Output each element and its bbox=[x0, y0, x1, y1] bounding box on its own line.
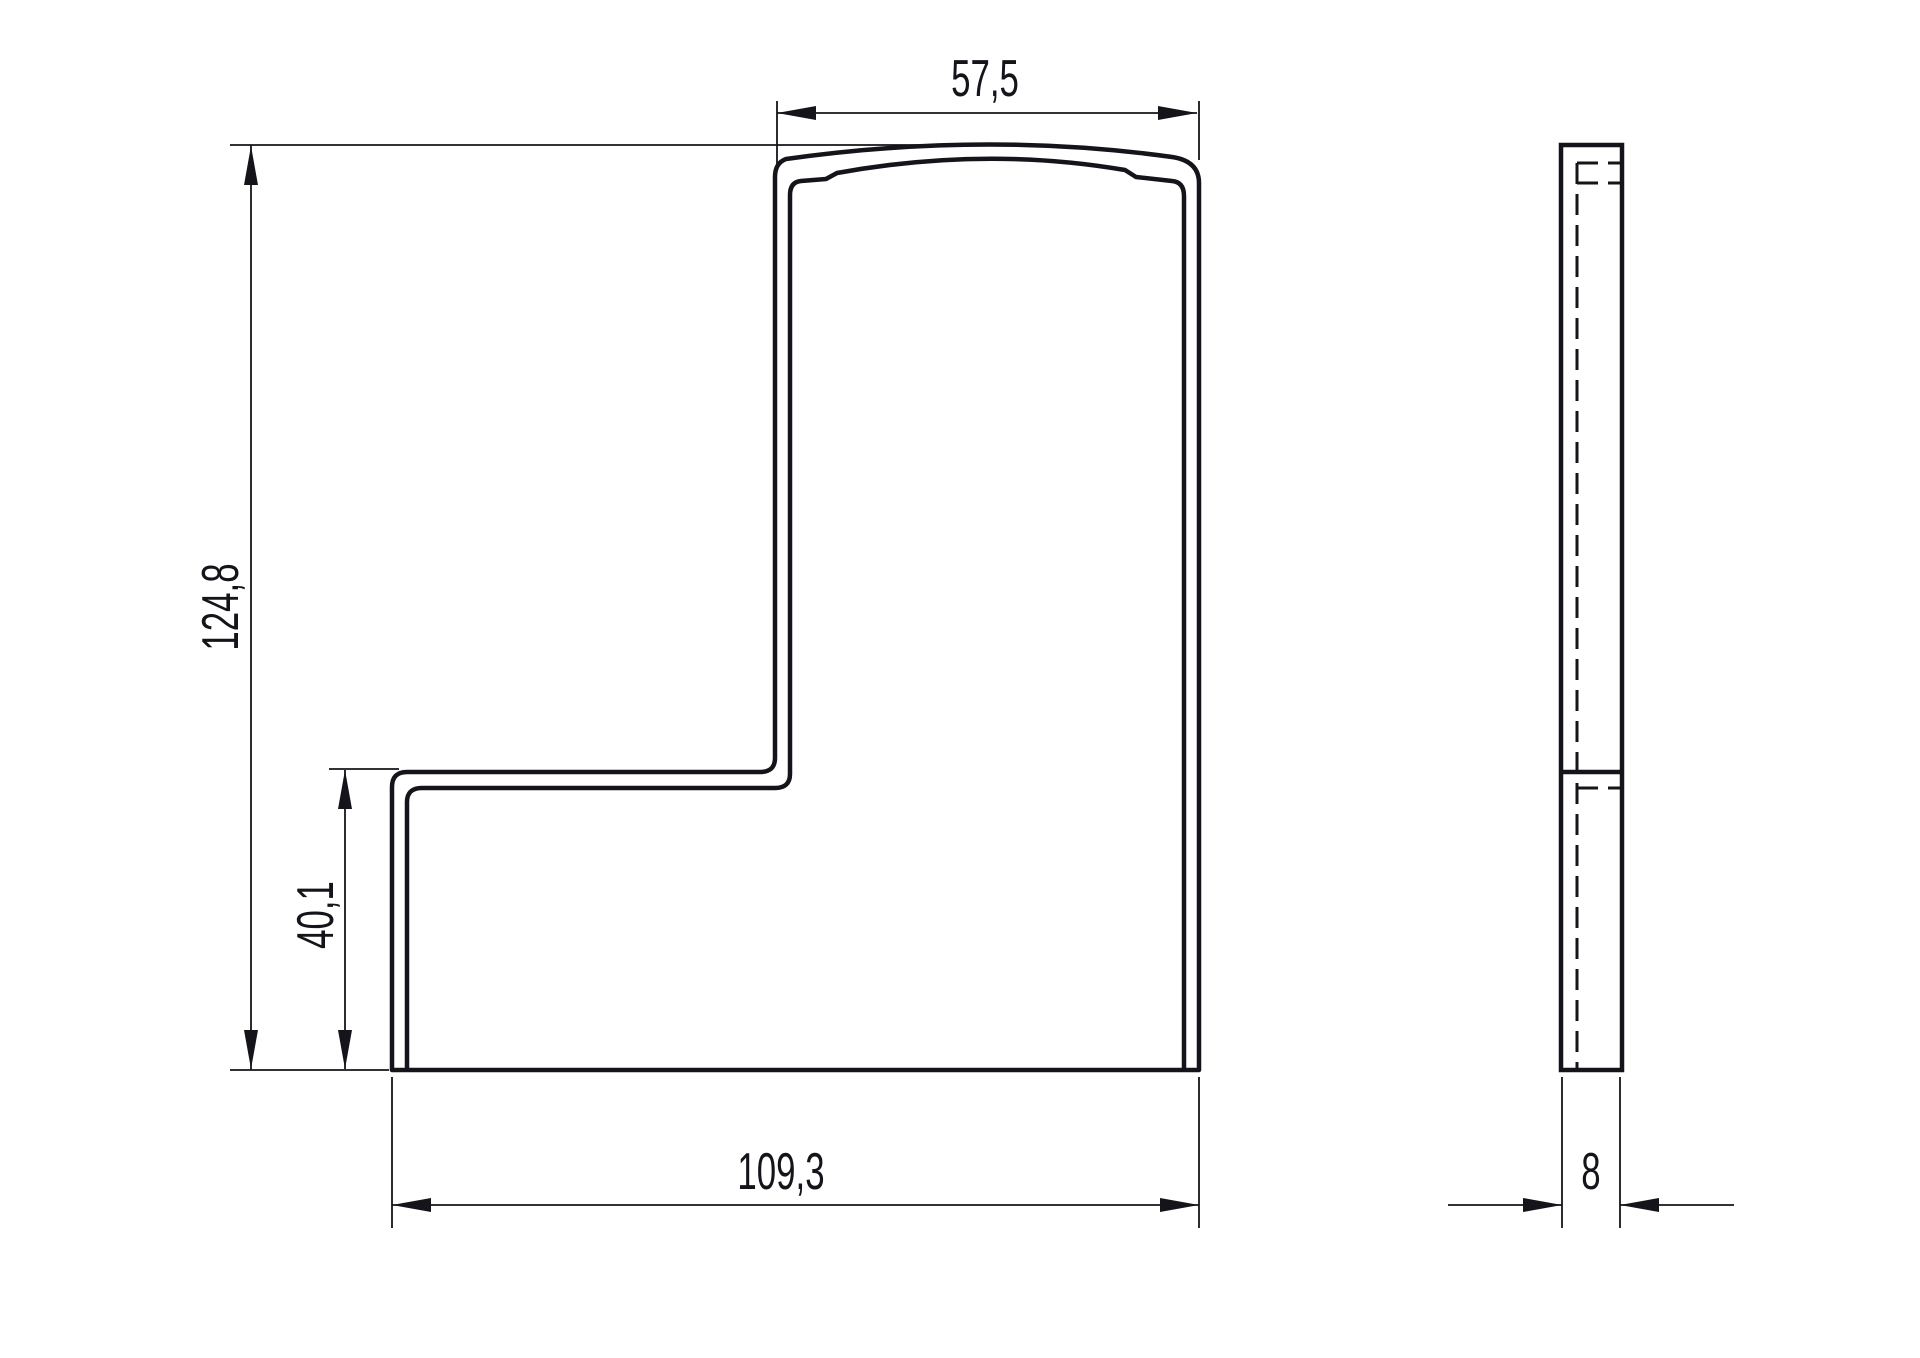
arrowhead-left bbox=[1523, 1198, 1562, 1212]
dimension-text-step-height: 40,1 bbox=[287, 881, 345, 949]
front-view bbox=[392, 144, 1199, 1070]
dimension-step-height: 40,1 bbox=[287, 769, 399, 1069]
side-outline bbox=[1561, 145, 1622, 1070]
front-inner-contour bbox=[407, 159, 1184, 1070]
arrowhead-right bbox=[1158, 106, 1197, 120]
dimension-bottom-width: 109,3 bbox=[392, 1077, 1199, 1228]
front-outer-contour bbox=[392, 144, 1199, 1070]
arrowhead-top bbox=[338, 770, 352, 809]
arrowhead-right bbox=[1620, 1198, 1659, 1212]
arrowhead-left bbox=[777, 106, 816, 120]
dimension-thickness: 8 bbox=[1448, 1077, 1734, 1228]
dimension-text-bottom-width: 109,3 bbox=[737, 1143, 824, 1201]
technical-drawing-canvas: 57,5 124,8 40,1 109,3 bbox=[0, 0, 1920, 1358]
side-view bbox=[1561, 145, 1622, 1070]
dimension-text-top-width: 57,5 bbox=[951, 50, 1019, 108]
arrowhead-bottom bbox=[338, 1030, 352, 1069]
arrowhead-left bbox=[392, 1198, 431, 1212]
dimension-text-thickness: 8 bbox=[1581, 1143, 1600, 1201]
arrowhead-bottom bbox=[244, 1030, 258, 1069]
dimension-text-total-height: 124,8 bbox=[192, 563, 250, 650]
arrowhead-top bbox=[244, 146, 258, 185]
arrowhead-right bbox=[1160, 1198, 1199, 1212]
cad-drawing: 57,5 124,8 40,1 109,3 bbox=[0, 0, 1920, 1358]
